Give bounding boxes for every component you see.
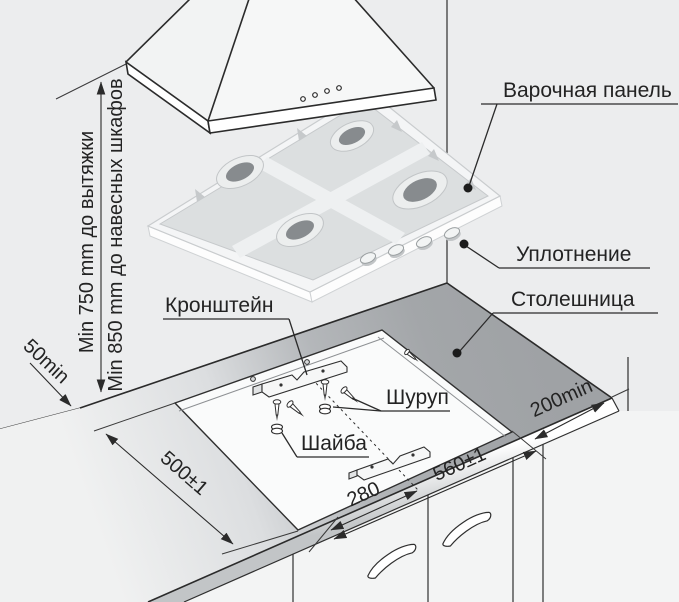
callout-hob-panel: Варочная панель [464, 79, 679, 193]
label-seal: Уплотнение [516, 243, 631, 266]
installation-diagram: Min 750 mm до вытяжки Min 850 mm до наве… [0, 0, 679, 602]
callout-dot [460, 240, 469, 249]
bracket-hole [411, 453, 414, 456]
callout-dot [464, 184, 473, 193]
washer [320, 408, 331, 414]
callout-seal: Уплотнение [460, 240, 651, 269]
callout-leader [466, 246, 499, 268]
callout-dot [453, 349, 462, 358]
bracket-hole [279, 383, 282, 386]
label-hob-panel: Варочная панель [503, 79, 672, 102]
dim-hood-clearance: Min 750 mm до вытяжки [76, 131, 98, 353]
label-washer: Шайба [301, 432, 367, 455]
label-screw: Шуруп [386, 386, 449, 409]
label-bracket: Кронштейн [165, 294, 273, 317]
label-countertop: Столешница [511, 288, 635, 311]
diagram-canvas: Min 750 mm до вытяжки Min 850 mm до наве… [0, 0, 679, 602]
bracket-hole [370, 465, 373, 468]
right-gap-extension [612, 389, 629, 397]
screw-position-mark [251, 377, 256, 382]
bracket-hole [321, 369, 324, 372]
washer [272, 428, 283, 434]
callout-leader [469, 104, 497, 186]
dim-cabinet-clearance: Min 850 mm до навесных шкафов [105, 78, 127, 391]
screw-position-mark [305, 360, 310, 365]
